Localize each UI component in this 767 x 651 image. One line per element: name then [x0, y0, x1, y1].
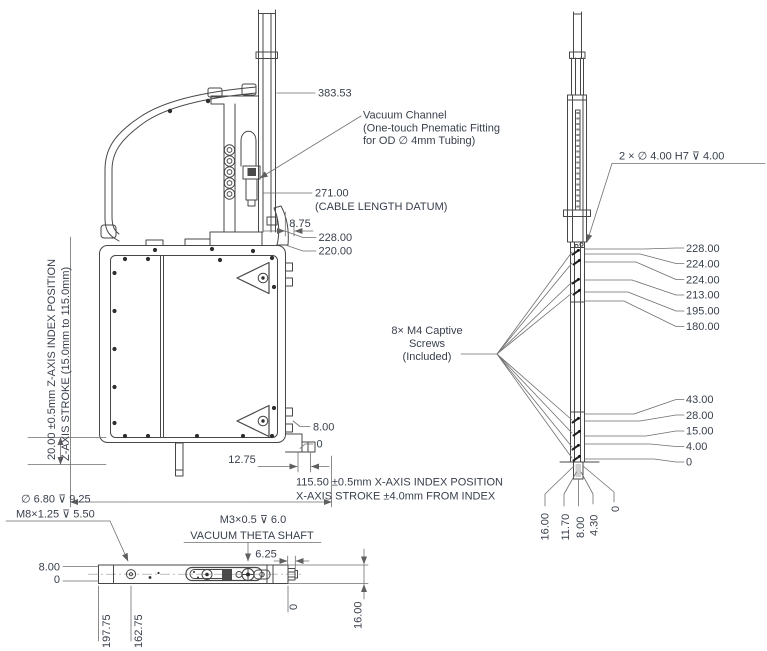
- dim-upper-3: 213.00: [686, 290, 720, 302]
- front-view: 383.53 Vacuum Channel (One-touch Pnemati…: [28, 10, 503, 507]
- captive-screws: [573, 249, 581, 461]
- drawing-canvas: 383.53 Vacuum Channel (One-touch Pnemati…: [0, 0, 767, 651]
- z-note-line1: 20.00 ±0.5mm Z-AXIS INDEX POSITION: [46, 259, 58, 460]
- dim-base-4: 0: [610, 506, 622, 512]
- dim-upper-0: 228.00: [686, 243, 720, 255]
- dim-228: 228.00: [319, 232, 353, 244]
- dim-0: 0: [317, 439, 323, 451]
- x-note-line2: X-AXIS STROKE ±4.0mm FROM INDEX: [296, 491, 496, 503]
- dim-16: 16.00: [353, 601, 365, 629]
- dim-220: 220.00: [319, 246, 353, 258]
- dim-0-left: 0: [54, 574, 60, 586]
- side-pole-collar: [570, 52, 586, 59]
- dim-length-1: 162.75: [133, 614, 145, 648]
- screws-note-line3: (Included): [403, 351, 452, 363]
- vacuum-fitting: [241, 131, 260, 206]
- cable-tower: [208, 88, 258, 232]
- x-note-line1: 115.50 ±0.5mm X-AXIS INDEX POSITION: [296, 477, 503, 489]
- technical-drawing-page: 383.53 Vacuum Channel (One-touch Pnemati…: [0, 0, 767, 651]
- dim-12-75: 12.75: [228, 454, 256, 466]
- screws-note-line1: 8× M4 Captive: [391, 325, 462, 337]
- lower-dim-leaders: [585, 400, 684, 463]
- dim-base-1: 11.70: [560, 514, 572, 541]
- body-outline: [100, 246, 286, 443]
- dim-271: 271.00: [315, 188, 349, 200]
- dim-8: 8.00: [313, 422, 334, 434]
- triangle-pocket-bottom: [237, 406, 269, 437]
- dim-6-25: 6.25: [255, 549, 276, 561]
- bottom-view: ∅ 6.80 ⊽ 9.25 M8×1.25 ⊽ 5.50 M3×0.5 ⊽ 6.…: [6, 494, 368, 649]
- stage-body: [100, 206, 316, 476]
- body-screws: [112, 247, 276, 438]
- dim-length-0: 197.75: [101, 614, 113, 648]
- dim-lower-4: 0: [686, 457, 692, 469]
- dim-upper-1: 224.00: [686, 259, 720, 271]
- dim-lower-3: 4.00: [686, 441, 707, 453]
- dim-upper-5: 180.00: [686, 321, 720, 333]
- theta-shaft-stub: [176, 443, 184, 476]
- thread-note: M8×1.25 ⊽ 5.50: [16, 509, 95, 521]
- triangle-pocket-top: [237, 263, 269, 294]
- dim-lower-1: 28.00: [686, 410, 714, 422]
- counterbore-note: ∅ 6.80 ⊽ 9.25: [21, 494, 91, 506]
- dim-base-2: 8.00: [575, 517, 587, 538]
- front-pole: [210, 10, 278, 245]
- cable-datum-note: (CABLE LENGTH DATUM): [315, 201, 447, 213]
- dim-lower-2: 15.00: [686, 426, 714, 438]
- screw-leader-fan: [497, 252, 572, 458]
- dim-8-left: 8.00: [39, 562, 60, 574]
- dim-base-3: 4.30: [589, 515, 601, 536]
- dowel-note: 2 × ∅ 4.00 H7 ⊽ 4.00: [619, 151, 724, 163]
- screws-note-line2: Screws: [409, 338, 446, 350]
- shaft-label: VACUUM THETA SHAFT: [190, 530, 314, 542]
- vacuum-note-line1: Vacuum Channel: [363, 110, 447, 122]
- dim-383: 383.53: [318, 88, 352, 100]
- dim-length-2: 0: [288, 604, 300, 610]
- dim-lower-0: 43.00: [686, 394, 714, 406]
- dowel-hole: [575, 244, 578, 247]
- shaft-thread-note: M3×0.5 ⊽ 6.0: [220, 514, 286, 526]
- upper-dim-leaders: [585, 248, 684, 327]
- dim-base-0: 16.00: [540, 513, 552, 541]
- pole-collar: [256, 52, 278, 59]
- vacuum-note-line3: for OD ∅ 4mm Tubing): [363, 135, 475, 147]
- z-note-line2: Z-AXIS STROKE (15.0mm to 115.0mm): [60, 267, 72, 461]
- vacuum-note-line2: (One-touch Pnematic Fitting: [363, 123, 500, 135]
- dowel-hole: [580, 243, 583, 246]
- dim-8-75: 8.75: [289, 218, 310, 230]
- dim-upper-4: 195.00: [686, 306, 720, 318]
- dim-upper-2: 224.00: [686, 275, 720, 287]
- cable-loop: [101, 84, 256, 241]
- side-view: 2 × ∅ 4.00 H7 ⊽ 4.00 8× M4 Captive Screw…: [391, 12, 765, 541]
- carriage-foot: [286, 434, 303, 452]
- side-profile: [560, 12, 599, 479]
